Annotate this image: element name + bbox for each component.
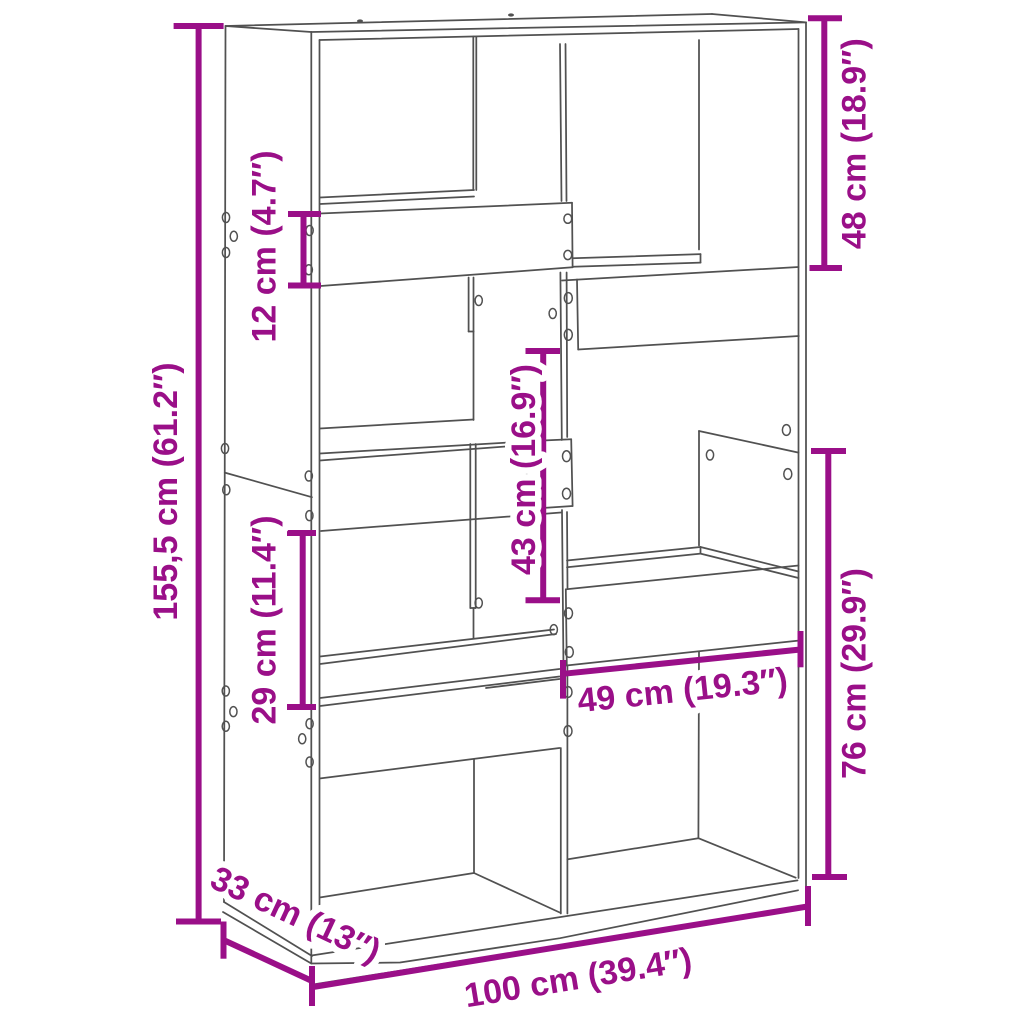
svg-text:155,5 cm (61.2″): 155,5 cm (61.2″): [147, 362, 185, 620]
svg-text:12 cm (4.7″): 12 cm (4.7″): [246, 150, 284, 342]
svg-text:76 cm (29.9″): 76 cm (29.9″): [836, 568, 874, 779]
svg-text:29 cm (11.4″): 29 cm (11.4″): [246, 515, 284, 724]
svg-text:43 cm (16.9″): 43 cm (16.9″): [505, 364, 543, 575]
svg-text:48 cm (18.9″): 48 cm (18.9″): [836, 38, 874, 249]
